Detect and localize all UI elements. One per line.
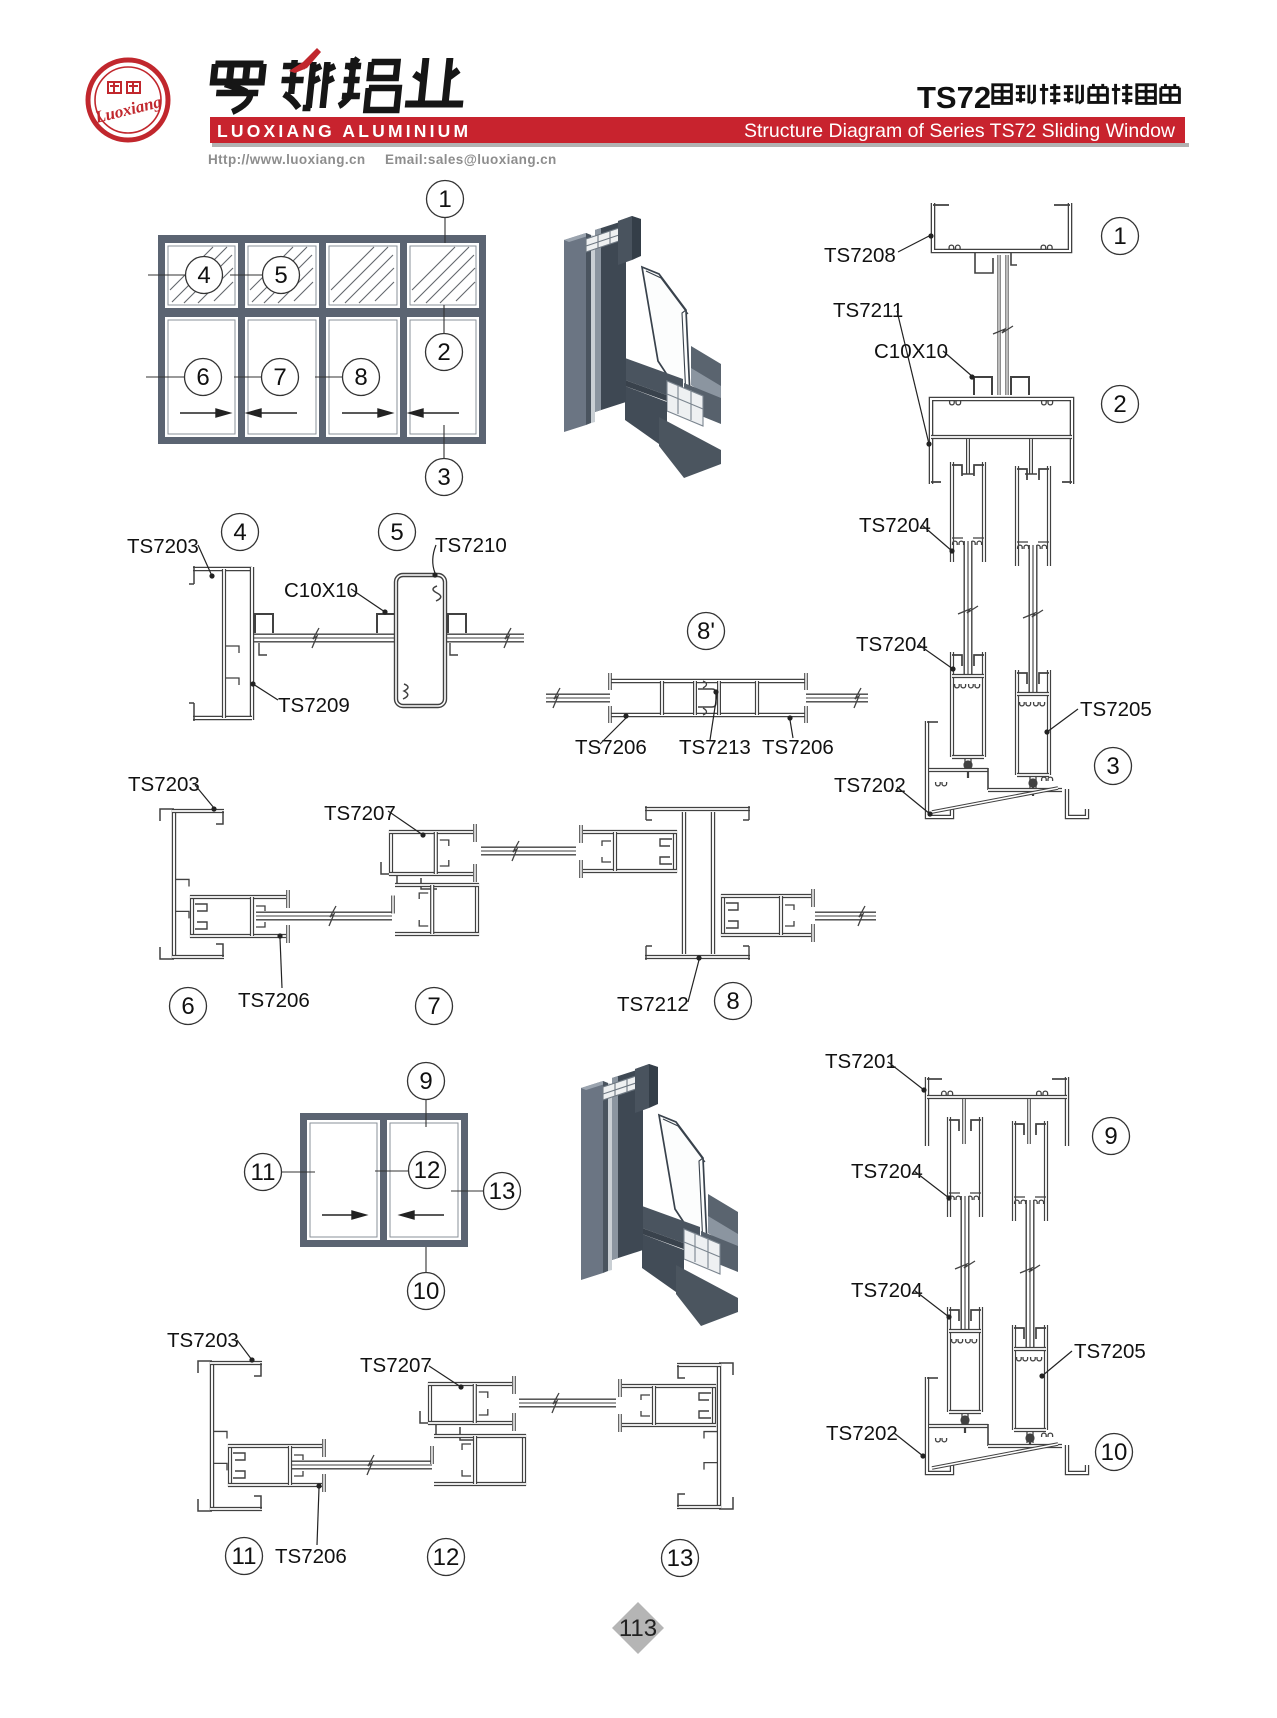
svg-text:TS7209: TS7209 — [278, 694, 350, 717]
svg-text:11: 11 — [232, 1543, 257, 1570]
svg-text:5: 5 — [390, 519, 403, 546]
svg-text:TS7213: TS7213 — [679, 736, 751, 759]
svg-text:2: 2 — [1113, 391, 1126, 418]
svg-text:TS7206: TS7206 — [762, 736, 834, 759]
svg-text:9: 9 — [1104, 1123, 1117, 1150]
svg-text:8: 8 — [726, 988, 739, 1015]
svg-text:TS7202: TS7202 — [826, 1422, 898, 1445]
svg-text:TS7208: TS7208 — [824, 244, 896, 267]
svg-text:TS72: TS72 — [917, 80, 991, 115]
svg-text:TS7212: TS7212 — [617, 993, 689, 1016]
svg-text:TS7203: TS7203 — [127, 535, 199, 558]
svg-text:1: 1 — [438, 186, 451, 213]
svg-text:7: 7 — [427, 993, 440, 1020]
svg-text:10: 10 — [1101, 1439, 1128, 1466]
svg-text:TS7211: TS7211 — [833, 299, 903, 322]
svg-text:LUOXIANG ALUMINIUM: LUOXIANG ALUMINIUM — [217, 121, 471, 141]
svg-text:TS7206: TS7206 — [238, 989, 310, 1012]
svg-text:3: 3 — [1106, 753, 1119, 780]
svg-text:TS7207: TS7207 — [324, 802, 396, 825]
svg-text:9: 9 — [419, 1068, 432, 1095]
svg-text:TS7207: TS7207 — [360, 1354, 432, 1377]
svg-text:7: 7 — [273, 364, 286, 391]
svg-text:TS7204: TS7204 — [851, 1279, 923, 1302]
svg-text:4: 4 — [197, 262, 210, 289]
svg-text:6: 6 — [181, 993, 194, 1020]
svg-text:Http://www.luoxiang.cn: Http://www.luoxiang.cn — [208, 152, 366, 167]
svg-text:10: 10 — [413, 1278, 440, 1305]
svg-text:5: 5 — [274, 262, 287, 289]
svg-text:TS7205: TS7205 — [1074, 1340, 1146, 1363]
svg-text:TS7201: TS7201 — [825, 1050, 897, 1073]
svg-text:TS7203: TS7203 — [167, 1329, 239, 1352]
svg-text:4: 4 — [233, 519, 246, 546]
svg-text:1: 1 — [1113, 223, 1126, 250]
svg-text:TS7206: TS7206 — [275, 1545, 347, 1568]
svg-text:TS7204: TS7204 — [859, 514, 931, 537]
svg-text:TS7206: TS7206 — [575, 736, 647, 759]
svg-text:TS7202: TS7202 — [834, 774, 906, 797]
svg-text:2: 2 — [437, 339, 450, 366]
svg-text:8': 8' — [697, 618, 715, 645]
svg-text:3: 3 — [437, 464, 450, 491]
svg-text:13: 13 — [667, 1545, 694, 1572]
svg-text:12: 12 — [433, 1544, 460, 1571]
svg-text:TS7204: TS7204 — [851, 1160, 923, 1183]
svg-text:TS7203: TS7203 — [128, 773, 200, 796]
svg-text:113: 113 — [619, 1615, 657, 1642]
svg-text:12: 12 — [414, 1157, 441, 1184]
svg-text:13: 13 — [489, 1178, 516, 1205]
svg-text:TS7204: TS7204 — [856, 633, 928, 656]
svg-text:11: 11 — [251, 1159, 276, 1186]
svg-text:TS7205: TS7205 — [1080, 698, 1152, 721]
svg-text:Email:sales@luoxiang.cn: Email:sales@luoxiang.cn — [385, 152, 557, 167]
svg-text:6: 6 — [196, 364, 209, 391]
svg-text:C10X10: C10X10 — [874, 340, 948, 363]
svg-text:C10X10: C10X10 — [284, 579, 358, 602]
svg-text:Structure Diagram of Series TS: Structure Diagram of Series TS72 Sliding… — [744, 120, 1176, 142]
svg-text:TS7210: TS7210 — [435, 534, 507, 557]
svg-text:8: 8 — [354, 364, 367, 391]
